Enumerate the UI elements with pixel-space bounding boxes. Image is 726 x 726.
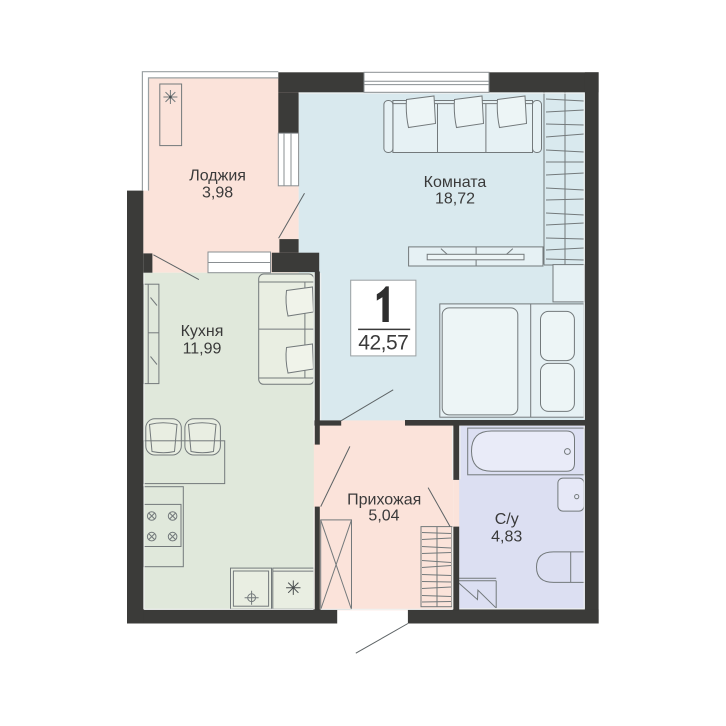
svg-text:Прихожая: Прихожая	[347, 492, 421, 509]
svg-text:Кухня: Кухня	[181, 323, 224, 340]
svg-text:Комната: Комната	[424, 174, 487, 191]
svg-text:3,98: 3,98	[202, 185, 233, 202]
svg-text:18,72: 18,72	[435, 191, 475, 208]
svg-text:4,83: 4,83	[491, 529, 522, 546]
svg-text:С/у: С/у	[495, 511, 519, 528]
svg-text:42,57: 42,57	[358, 332, 408, 355]
svg-text:5,04: 5,04	[368, 507, 399, 524]
svg-text:11,99: 11,99	[183, 341, 222, 358]
svg-text:Лоджия: Лоджия	[189, 168, 246, 185]
